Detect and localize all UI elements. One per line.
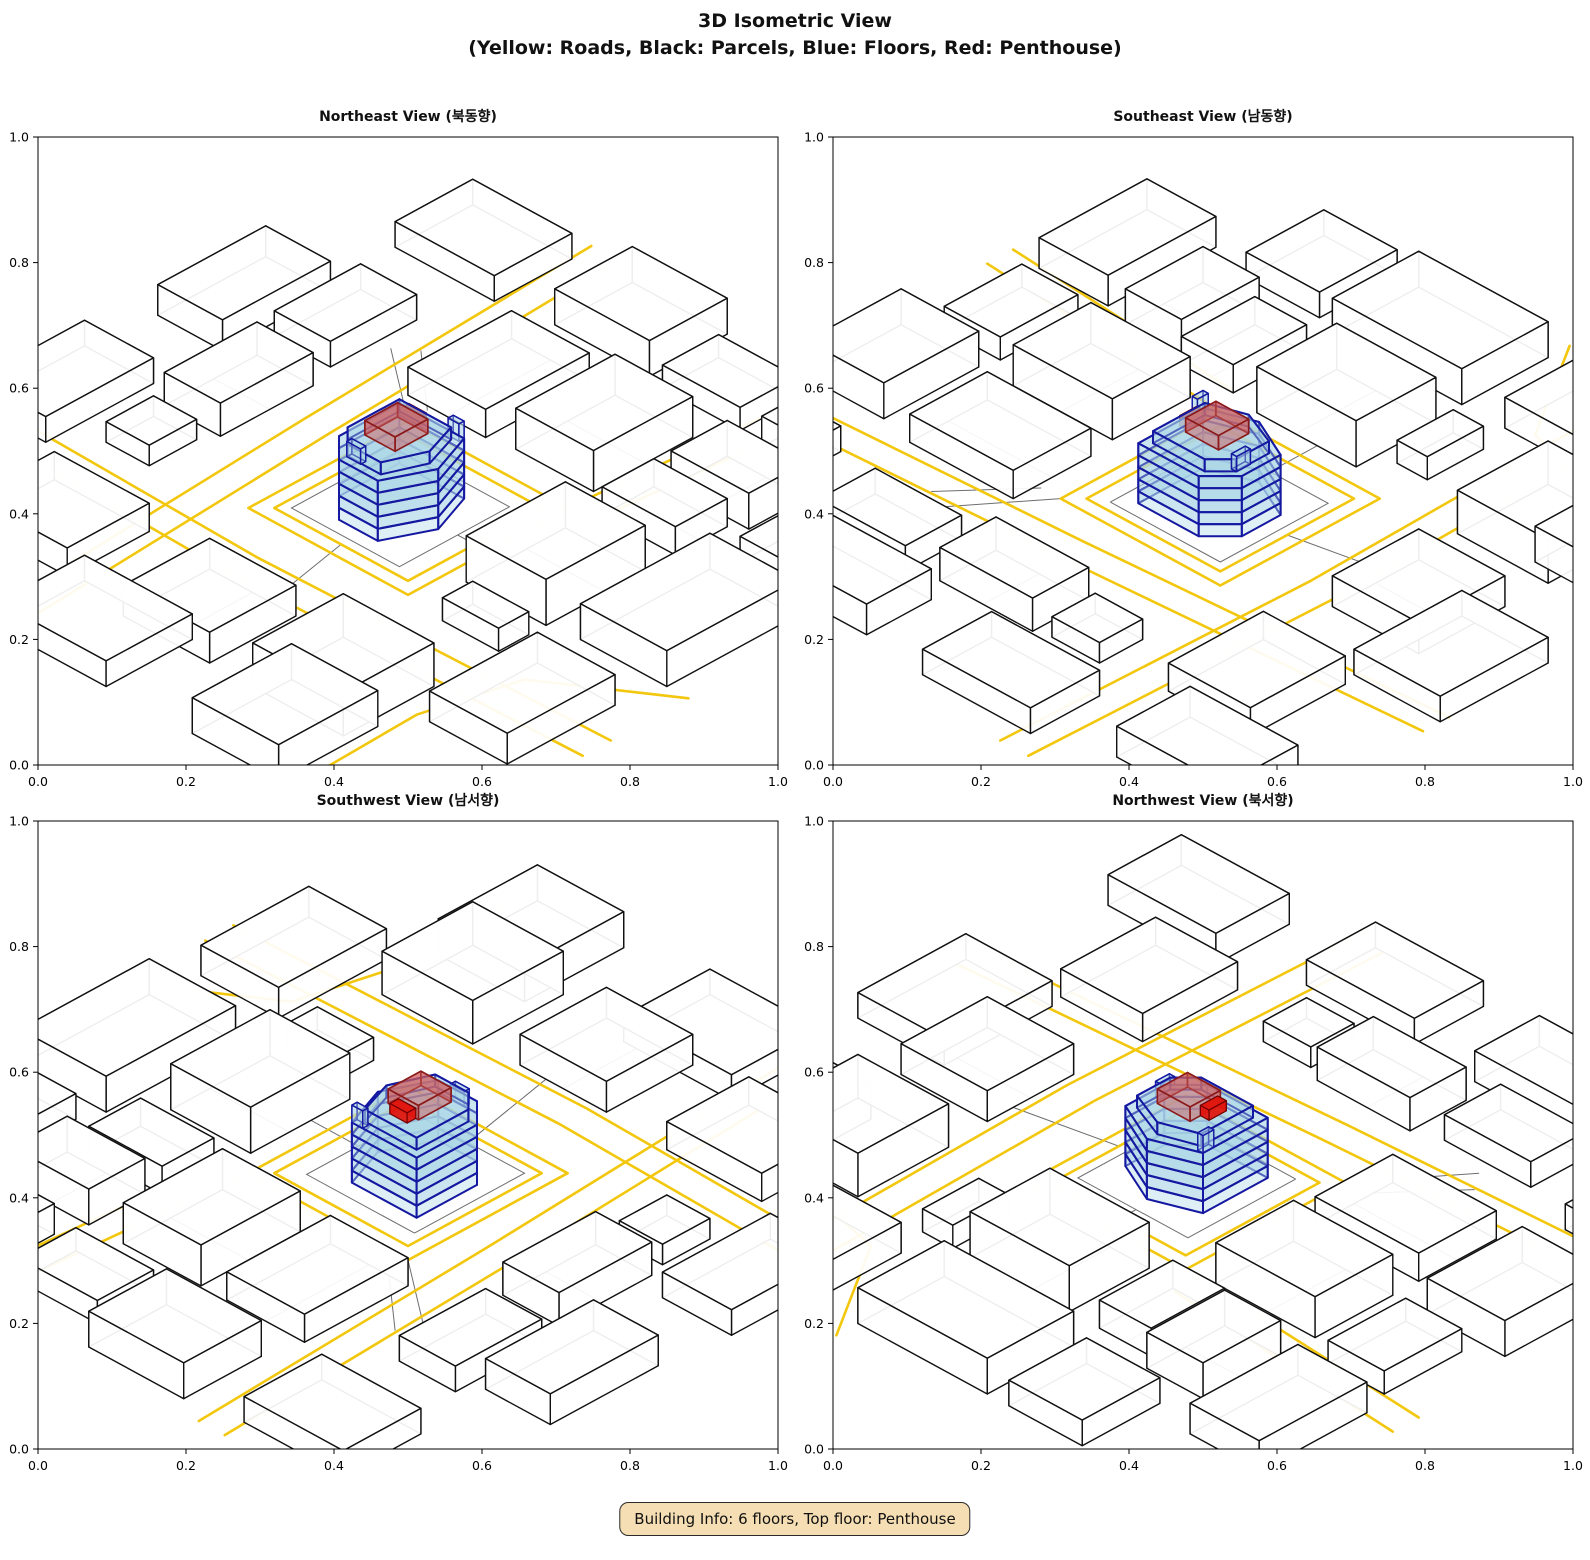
svg-text:1.0: 1.0 <box>768 1458 788 1473</box>
view-canvas-northeast: 0.00.00.20.20.40.40.60.60.80.81.01.0 <box>0 100 795 790</box>
svg-text:1.0: 1.0 <box>804 814 824 829</box>
svg-text:0.4: 0.4 <box>804 1190 824 1205</box>
view-canvas-northwest: 0.00.00.20.20.40.40.60.60.80.81.01.0 <box>795 784 1590 1474</box>
svg-text:1.0: 1.0 <box>9 130 29 145</box>
panel-southeast: Southeast View (남동향) 0.00.00.20.20.40.40… <box>795 100 1590 790</box>
svg-text:1.0: 1.0 <box>1563 1458 1583 1473</box>
svg-text:0.0: 0.0 <box>9 758 29 773</box>
svg-text:0.4: 0.4 <box>804 506 824 521</box>
svg-text:0.0: 0.0 <box>28 1458 48 1473</box>
svg-text:0.4: 0.4 <box>9 506 29 521</box>
svg-text:0.8: 0.8 <box>9 939 29 954</box>
svg-text:0.8: 0.8 <box>9 255 29 270</box>
panel-southwest: Southwest View (남서향) 0.00.00.20.20.40.40… <box>0 784 795 1474</box>
svg-text:0.8: 0.8 <box>1415 1458 1435 1473</box>
view-canvas-southeast: 0.00.00.20.20.40.40.60.60.80.81.01.0 <box>795 100 1590 790</box>
svg-text:0.8: 0.8 <box>620 1458 640 1473</box>
svg-text:1.0: 1.0 <box>804 130 824 145</box>
svg-text:0.4: 0.4 <box>9 1190 29 1205</box>
figure-title-line2: (Yellow: Roads, Black: Parcels, Blue: Fl… <box>0 35 1590 62</box>
svg-text:0.8: 0.8 <box>804 939 824 954</box>
svg-text:0.6: 0.6 <box>472 1458 492 1473</box>
panel-northwest: Northwest View (북서향) 0.00.00.20.20.40.40… <box>795 784 1590 1474</box>
svg-text:1.0: 1.0 <box>9 814 29 829</box>
svg-text:0.2: 0.2 <box>804 1316 824 1331</box>
svg-text:0.0: 0.0 <box>804 758 824 773</box>
svg-text:0.2: 0.2 <box>971 1458 991 1473</box>
svg-text:0.2: 0.2 <box>9 632 29 647</box>
svg-text:0.8: 0.8 <box>804 255 824 270</box>
panel-northeast: Northeast View (북동향) 0.00.00.20.20.40.40… <box>0 100 795 790</box>
svg-text:0.0: 0.0 <box>823 1458 843 1473</box>
figure-title-line1: 3D Isometric View <box>0 8 1590 35</box>
svg-text:0.6: 0.6 <box>1267 1458 1287 1473</box>
building-info-badge: Building Info: 6 floors, Top floor: Pent… <box>619 1502 970 1536</box>
svg-text:0.6: 0.6 <box>9 381 29 396</box>
svg-text:0.2: 0.2 <box>176 1458 196 1473</box>
svg-text:0.2: 0.2 <box>9 1316 29 1331</box>
svg-text:0.4: 0.4 <box>324 1458 344 1473</box>
svg-text:0.6: 0.6 <box>9 1065 29 1080</box>
svg-text:0.2: 0.2 <box>804 632 824 647</box>
svg-text:0.0: 0.0 <box>9 1442 29 1457</box>
svg-text:0.4: 0.4 <box>1119 1458 1139 1473</box>
figure-title: 3D Isometric View (Yellow: Roads, Black:… <box>0 8 1590 62</box>
svg-text:0.0: 0.0 <box>804 1442 824 1457</box>
view-canvas-southwest: 0.00.00.20.20.40.40.60.60.80.81.01.0 <box>0 784 795 1474</box>
svg-text:0.6: 0.6 <box>804 381 824 396</box>
svg-text:0.6: 0.6 <box>804 1065 824 1080</box>
